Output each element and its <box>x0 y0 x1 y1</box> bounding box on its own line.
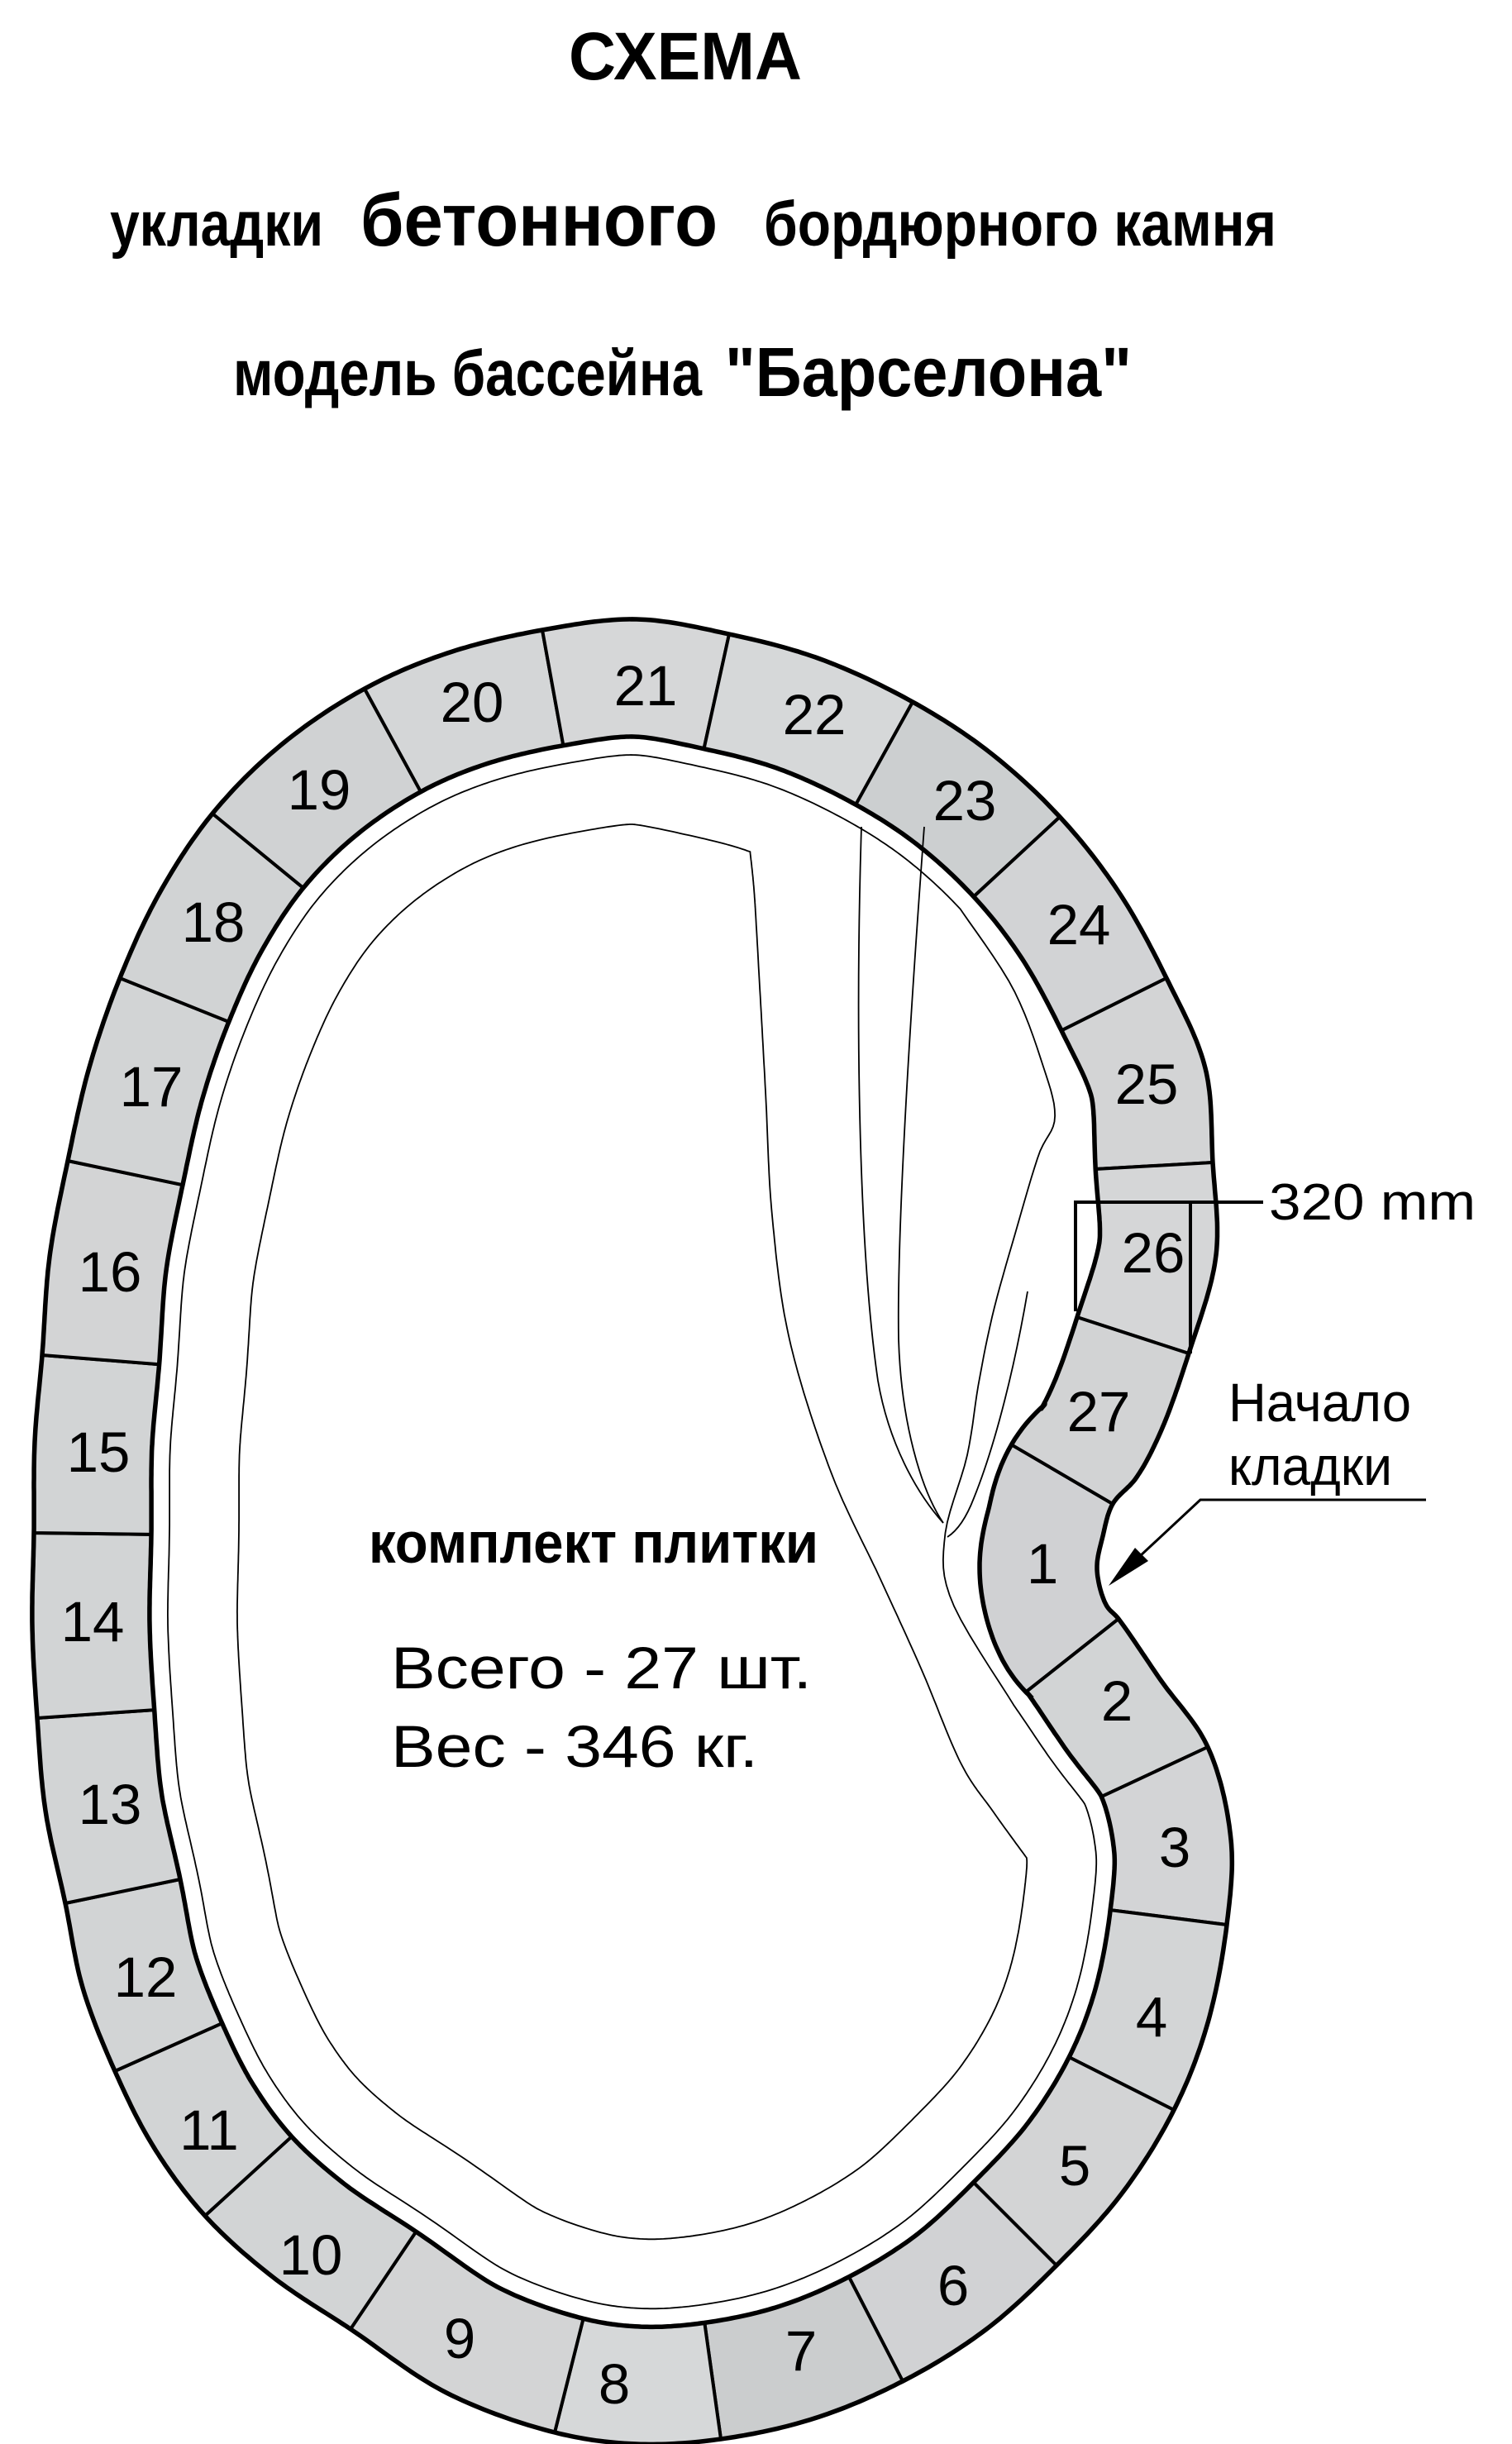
svg-text:320 mm: 320 mm <box>1269 1174 1476 1231</box>
svg-text:бетонного: бетонного <box>360 179 718 262</box>
svg-text:5: 5 <box>1059 2134 1090 2198</box>
svg-text:23: 23 <box>933 769 997 833</box>
svg-text:кладки: кладки <box>1228 1435 1392 1496</box>
svg-text:22: 22 <box>783 683 847 747</box>
svg-text:11: 11 <box>179 2098 239 2162</box>
svg-text:12: 12 <box>114 1945 178 2009</box>
svg-text:комплект плитки: комплект плитки <box>369 1511 818 1575</box>
svg-text:15: 15 <box>67 1420 131 1484</box>
svg-text:модель бассейна: модель бассейна <box>233 337 703 409</box>
svg-text:13: 13 <box>79 1773 142 1836</box>
svg-text:19: 19 <box>288 758 351 822</box>
svg-text:Всего - 27 шт.: Всего - 27 шт. <box>391 1636 812 1702</box>
svg-text:27: 27 <box>1067 1380 1131 1444</box>
svg-text:10: 10 <box>279 2223 343 2287</box>
svg-text:СХЕМА: СХЕМА <box>569 19 802 94</box>
svg-text:9: 9 <box>444 2307 475 2370</box>
svg-text:3: 3 <box>1159 1816 1190 1879</box>
svg-text:7: 7 <box>785 2319 817 2383</box>
svg-text:"Барселона": "Барселона" <box>725 333 1132 411</box>
svg-text:4: 4 <box>1136 1985 1167 2049</box>
svg-text:18: 18 <box>182 890 246 954</box>
svg-text:25: 25 <box>1115 1053 1179 1116</box>
svg-text:26: 26 <box>1122 1221 1185 1285</box>
svg-text:Вес - 346 кг.: Вес - 346 кг. <box>391 1715 758 1780</box>
svg-text:17: 17 <box>120 1055 184 1119</box>
svg-text:24: 24 <box>1047 893 1111 957</box>
svg-text:14: 14 <box>61 1590 125 1654</box>
svg-text:укладки: укладки <box>110 189 323 260</box>
svg-text:Начало: Начало <box>1228 1372 1411 1433</box>
svg-text:6: 6 <box>937 2254 969 2318</box>
svg-text:21: 21 <box>614 654 678 718</box>
svg-text:8: 8 <box>599 2352 630 2416</box>
svg-text:16: 16 <box>79 1240 142 1304</box>
svg-text:20: 20 <box>441 671 504 734</box>
svg-text:2: 2 <box>1101 1669 1133 1733</box>
svg-text:1: 1 <box>1027 1532 1058 1596</box>
svg-text:бордюрного камня: бордюрного камня <box>764 189 1276 260</box>
